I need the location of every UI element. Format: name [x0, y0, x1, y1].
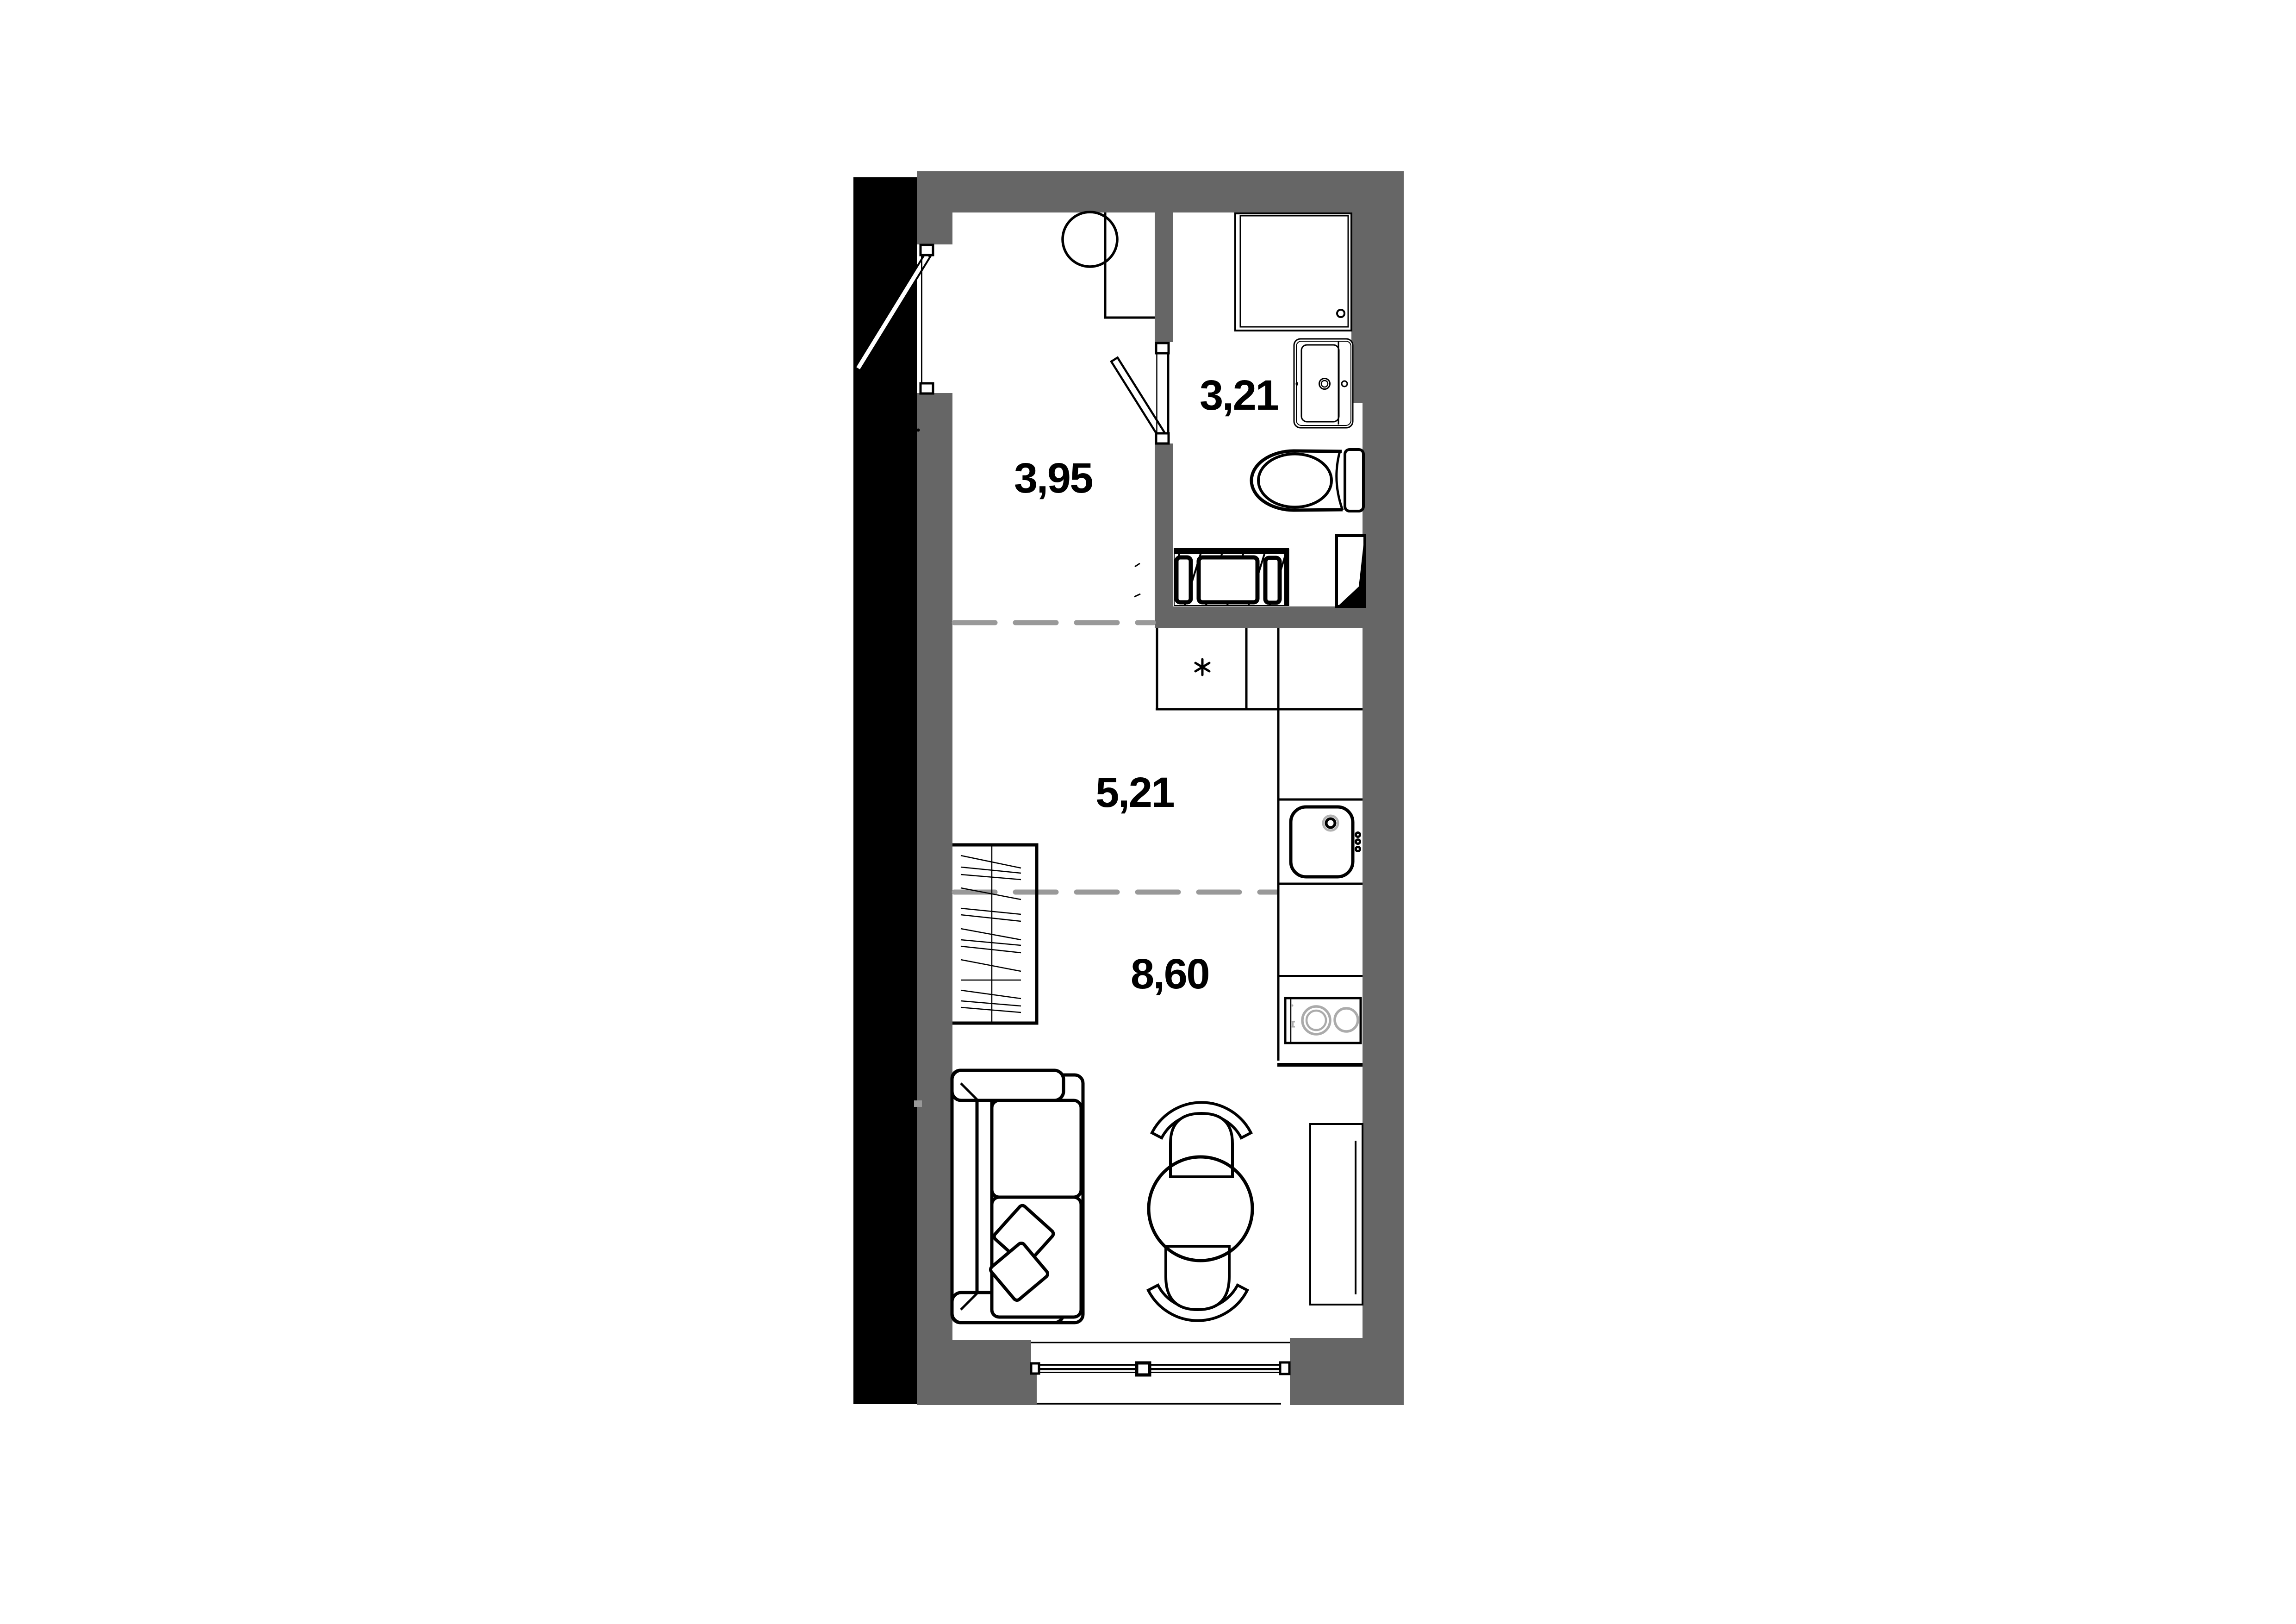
svg-text:5,21: 5,21: [1095, 769, 1174, 816]
svg-text:3,95: 3,95: [1014, 455, 1092, 502]
svg-text:3,21: 3,21: [1200, 372, 1278, 419]
svg-text:8,60: 8,60: [1131, 950, 1209, 998]
